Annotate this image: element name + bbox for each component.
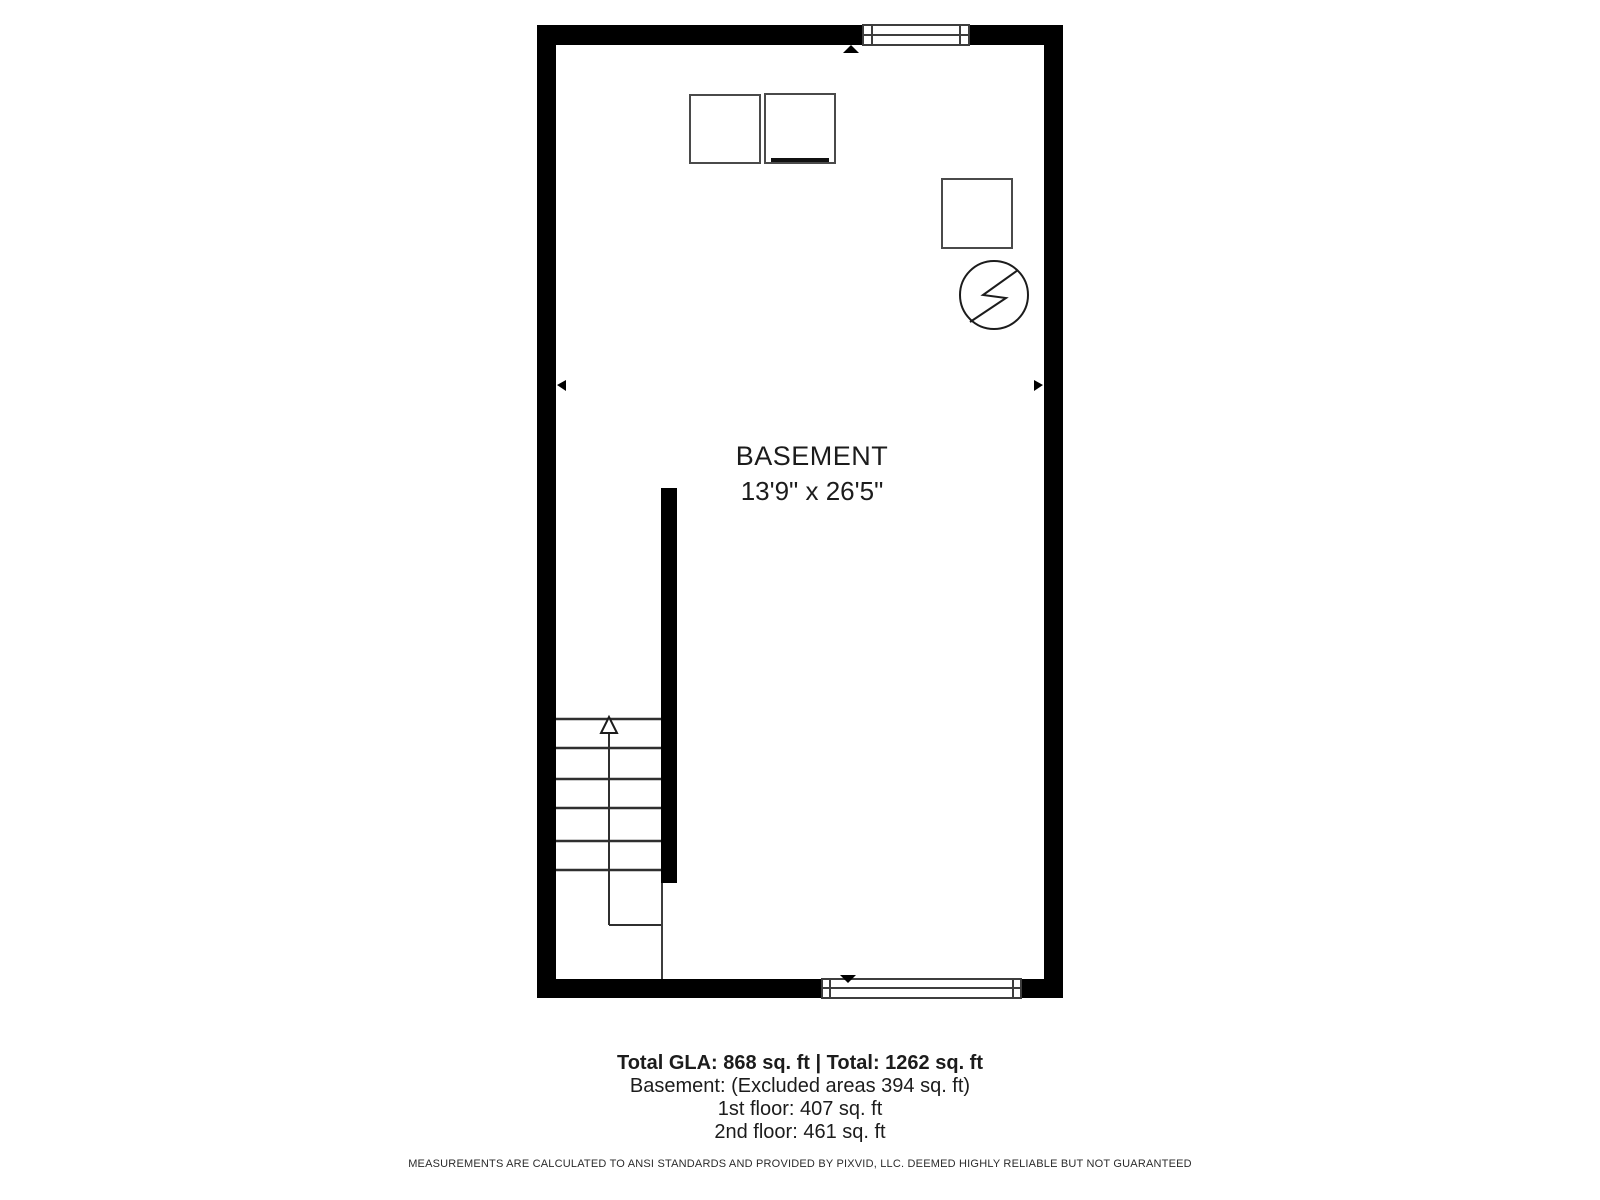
wall-marker-left-icon — [557, 380, 566, 391]
appliance-square-1 — [690, 95, 760, 163]
summary-total-gla: Total GLA: 868 sq. ft | Total: 1262 sq. … — [500, 1052, 1100, 1075]
top-wall — [537, 25, 1063, 45]
staircase — [556, 717, 661, 925]
summary-first-floor: 1st floor: 407 sq. ft — [500, 1098, 1100, 1121]
wall-marker-top-icon — [843, 45, 859, 53]
room-label: BASEMENT 13'9" x 26'5" — [662, 441, 962, 507]
area-summary: Total GLA: 868 sq. ft | Total: 1262 sq. … — [500, 1052, 1100, 1144]
wall-marker-right-icon — [1034, 380, 1043, 391]
room-name: BASEMENT — [662, 441, 962, 472]
appliance-square-2 — [765, 94, 835, 163]
top-window — [863, 25, 969, 45]
summary-second-floor: 2nd floor: 461 sq. ft — [500, 1121, 1100, 1144]
fixtures — [690, 94, 1028, 329]
left-wall — [537, 25, 556, 998]
floor-plan-drawing — [0, 0, 1600, 1200]
appliance-square-3 — [942, 179, 1012, 248]
right-wall — [1044, 25, 1063, 998]
stair-wall — [661, 488, 677, 883]
bottom-window — [822, 979, 1021, 998]
floor-plan-page: BASEMENT 13'9" x 26'5" Total GLA: 868 sq… — [0, 0, 1600, 1200]
room-dimensions: 13'9" x 26'5" — [662, 477, 962, 507]
disclaimer-text: MEASUREMENTS ARE CALCULATED TO ANSI STAN… — [400, 1158, 1200, 1170]
summary-basement: Basement: (Excluded areas 394 sq. ft) — [500, 1075, 1100, 1098]
exterior-walls — [537, 25, 1063, 998]
